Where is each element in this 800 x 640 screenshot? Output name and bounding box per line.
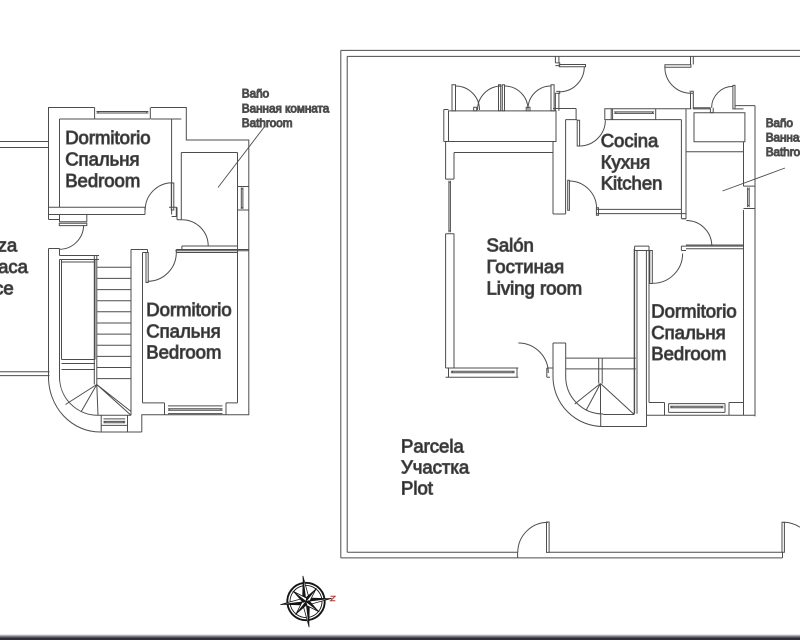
svg-text:Cocina: Cocina [601, 130, 659, 151]
svg-text:Bedroom: Bedroom [146, 341, 221, 362]
svg-text:Гостиная: Гостиная [487, 256, 565, 277]
svg-text:Plot: Plot [401, 478, 433, 499]
svg-text:Ванная комната: Ванная комната [242, 103, 330, 116]
svg-text:Baño: Baño [766, 117, 794, 130]
svg-text:Terraza: Terraza [0, 235, 18, 256]
svg-text:Salón: Salón [487, 235, 534, 256]
svg-text:Bathroom: Bathroom [242, 117, 293, 130]
svg-text:Terrace: Terrace [0, 277, 14, 298]
svg-text:Living room: Living room [487, 278, 583, 299]
svg-text:Dormitorio: Dormitorio [146, 299, 231, 320]
svg-text:Bathroom: Bathroom [766, 146, 800, 159]
svg-text:Спальня: Спальня [65, 148, 139, 169]
svg-text:Ванная комната: Ванная комната [766, 132, 800, 145]
svg-text:Parcela: Parcela [401, 435, 464, 456]
svg-text:Dormitorio: Dormitorio [651, 301, 736, 322]
svg-text:Baño: Baño [242, 87, 270, 100]
svg-text:Кухня: Кухня [601, 151, 651, 172]
svg-text:Спальня: Спальня [651, 322, 725, 343]
svg-text:Kitchen: Kitchen [601, 173, 663, 194]
svg-text:Терраса: Терраса [0, 256, 29, 277]
svg-text:Bedroom: Bedroom [651, 343, 726, 364]
svg-text:Участка: Участка [401, 457, 470, 478]
svg-text:Bedroom: Bedroom [65, 170, 140, 191]
svg-text:Спальня: Спальня [146, 320, 220, 341]
svg-text:Dormitorio: Dormitorio [65, 127, 150, 148]
